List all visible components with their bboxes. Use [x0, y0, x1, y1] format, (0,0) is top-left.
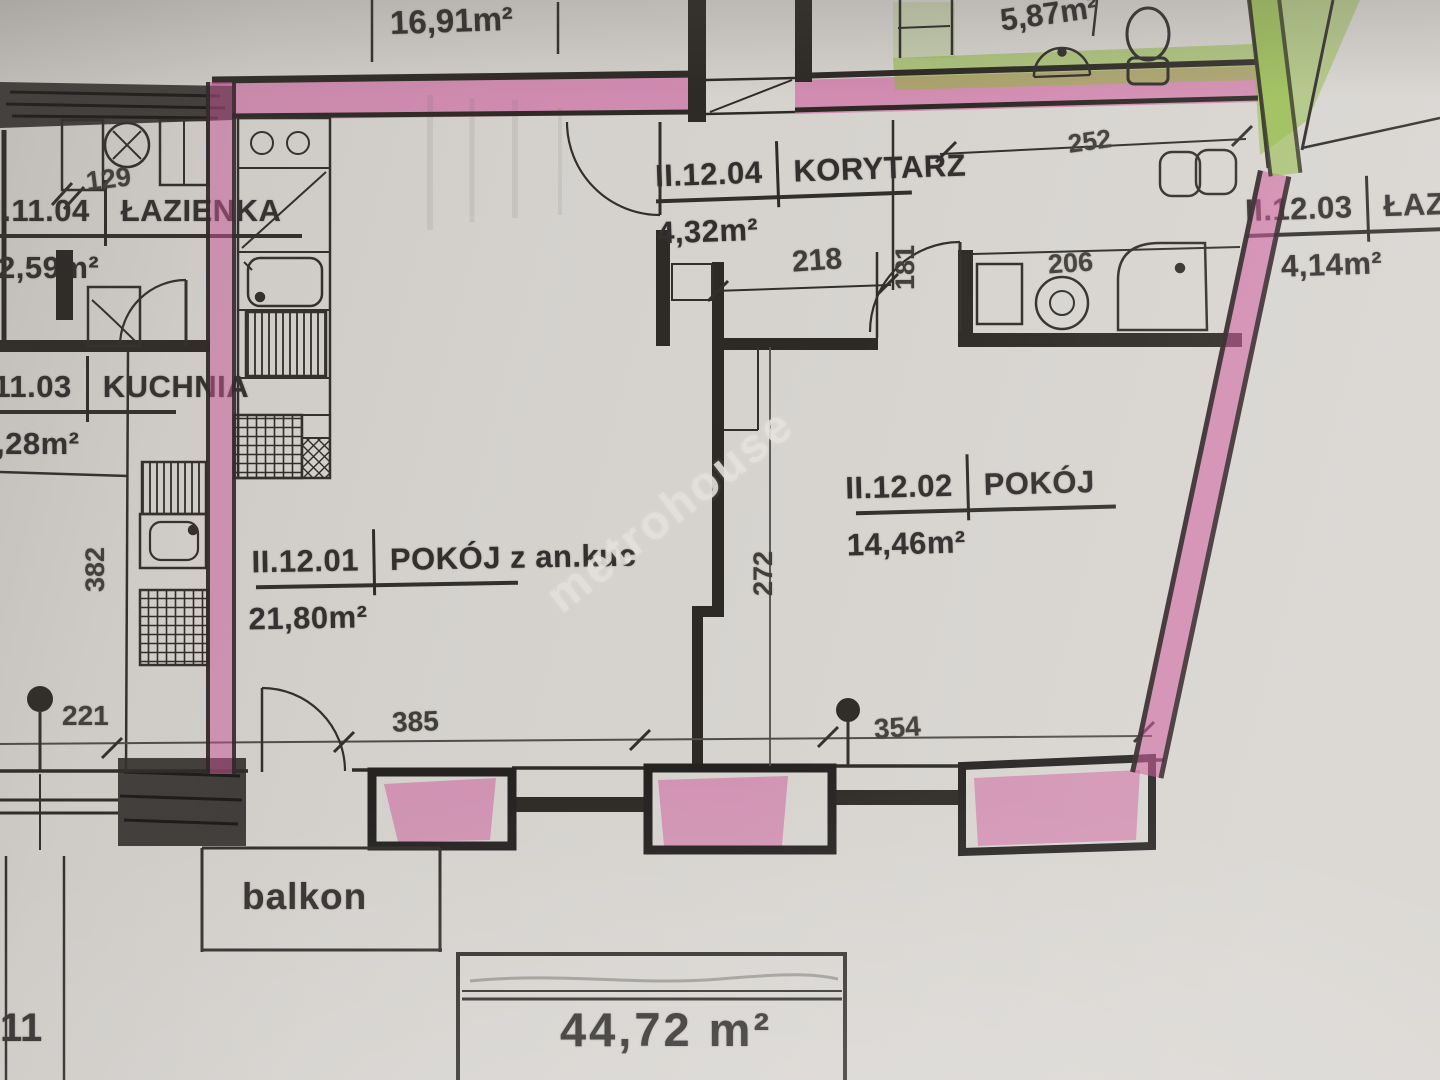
room-code: II.12.04 [654, 154, 763, 196]
balcony-label: balkon [242, 876, 367, 918]
dim-206: 206 [1047, 246, 1094, 280]
room-name: POKÓJ [983, 463, 1095, 504]
room-name: KORYTARZ [793, 147, 967, 191]
dim-218: 218 [791, 242, 843, 279]
room-area: 2,59m² [0, 250, 302, 286]
room-label-korytarz: II.12.04 KORYTARZ 4,32m² [654, 147, 968, 251]
room-code: II.12.01 [251, 541, 359, 581]
total-area-label: 44,72 m² [560, 1002, 772, 1057]
label-underline [0, 234, 302, 238]
wall-stub [56, 250, 73, 320]
dim-221: 221 [62, 700, 109, 732]
room-code: II.12.02 [845, 467, 953, 508]
room-label-lazienka-left: II.11.04 ŁAZIENKA 2,59m² [0, 192, 302, 286]
label-underline [256, 581, 518, 589]
floor-plan-scan: 16,91m² 5,87m² II.11.04 ŁAZIENKA 2,59m² … [0, 0, 1440, 1080]
dim-272: 272 [748, 551, 779, 596]
pink-wall-vertical [206, 82, 236, 774]
dim-129: 129 [84, 161, 133, 197]
room-code: II.11.03 [0, 368, 72, 406]
room-name: ŁAZIENKA [121, 192, 282, 230]
dim-354: 354 [873, 710, 922, 745]
dim-385: 385 [391, 705, 439, 739]
room-area: 14,46m² [846, 520, 1117, 563]
room-area: 4,14m² [1280, 241, 1440, 284]
room-label-pokoj2: II.12.02 POKÓJ 14,46m² [845, 462, 1117, 563]
upper-unit-area-label: 16,91m² [389, 0, 513, 42]
room-name: ŁAZIE [1383, 184, 1440, 225]
dim-382: 382 [80, 547, 111, 592]
room-code: II.11.04 [0, 192, 90, 230]
dim-252: 252 [1066, 123, 1113, 160]
label-divider [86, 356, 89, 422]
dim-181: 181 [890, 245, 921, 290]
corner-fragment-label: 11 [0, 1006, 42, 1051]
